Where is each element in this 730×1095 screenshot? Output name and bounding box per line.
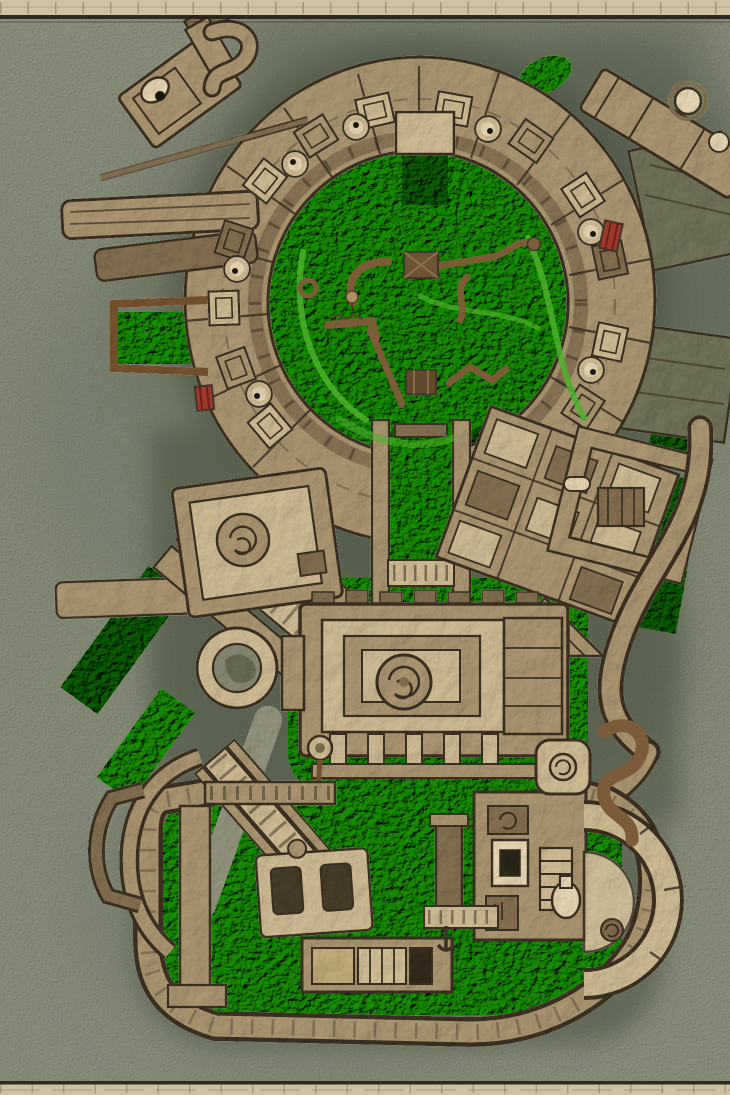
red-crate-west (195, 385, 214, 411)
west-inner-column (180, 806, 210, 1002)
white-pill-knob (564, 477, 590, 491)
shrine-east-wing (504, 618, 562, 734)
mushroom (346, 291, 358, 303)
dungeon-map-illustration (0, 0, 730, 1095)
frame-line-top (0, 15, 730, 19)
court-crate (598, 488, 644, 526)
white-knob-e (709, 132, 729, 152)
shrine-base-step (312, 764, 552, 778)
north-chamber-frame (396, 112, 454, 154)
dungeon-map-canvas (0, 0, 730, 1095)
north-chamber-door (402, 150, 448, 205)
white-knob-ne (675, 88, 701, 114)
frame-line-bottom (0, 1081, 730, 1085)
central-shrine (282, 590, 568, 800)
crate-south (406, 370, 436, 394)
round-tower (536, 740, 590, 794)
passage-hatch-platform (388, 560, 454, 586)
shrine-west-stub (282, 636, 304, 710)
mid-column (436, 822, 462, 910)
